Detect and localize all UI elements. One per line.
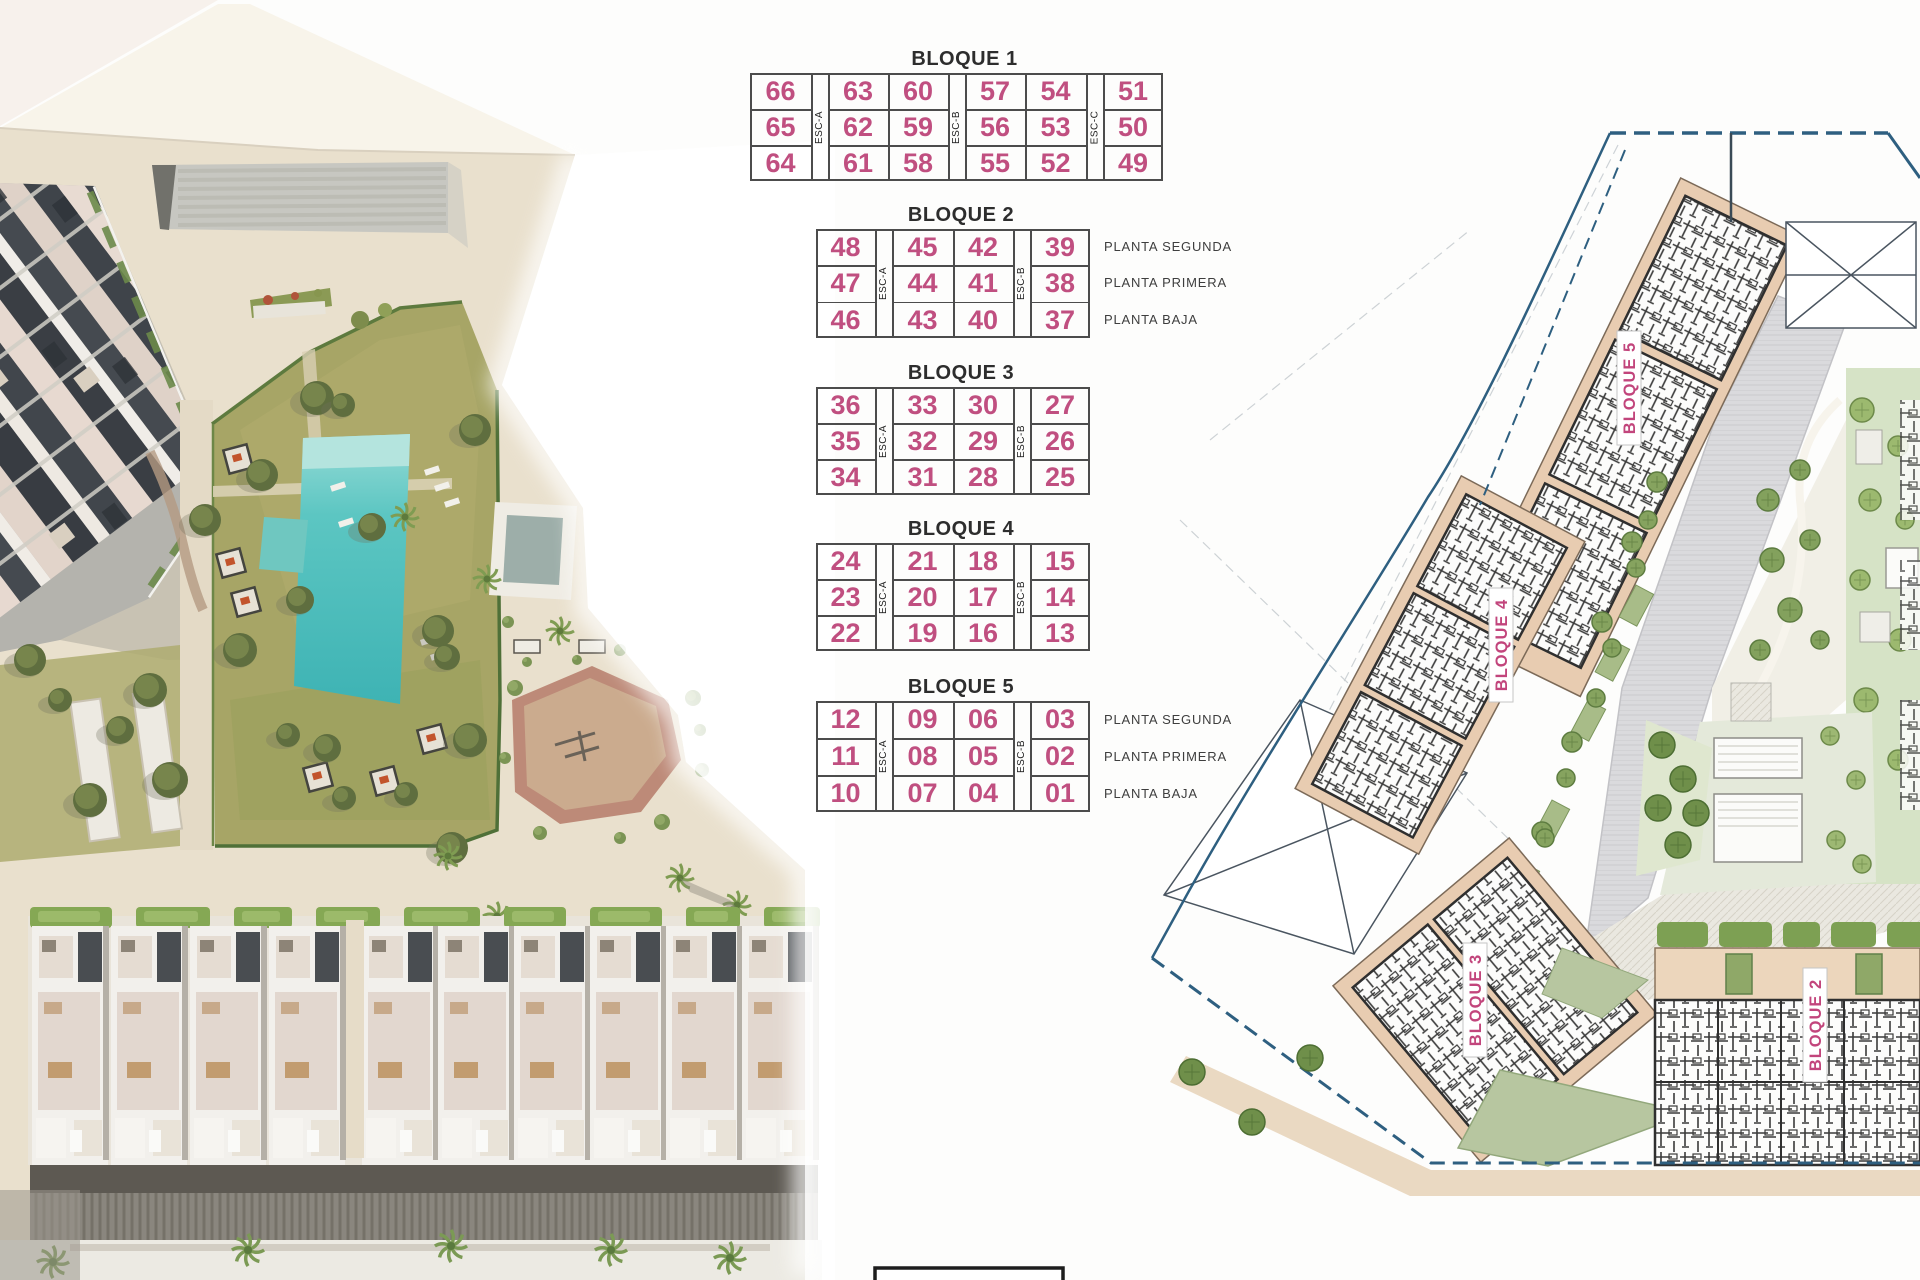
svg-text:BLOQUE 3: BLOQUE 3 [1467,954,1485,1046]
svg-text:BLOQUE 2: BLOQUE 2 [1807,979,1825,1071]
svg-text:BLOQUE 5: BLOQUE 5 [1621,342,1639,434]
svg-text:BLOQUE 4: BLOQUE 4 [1493,599,1511,691]
